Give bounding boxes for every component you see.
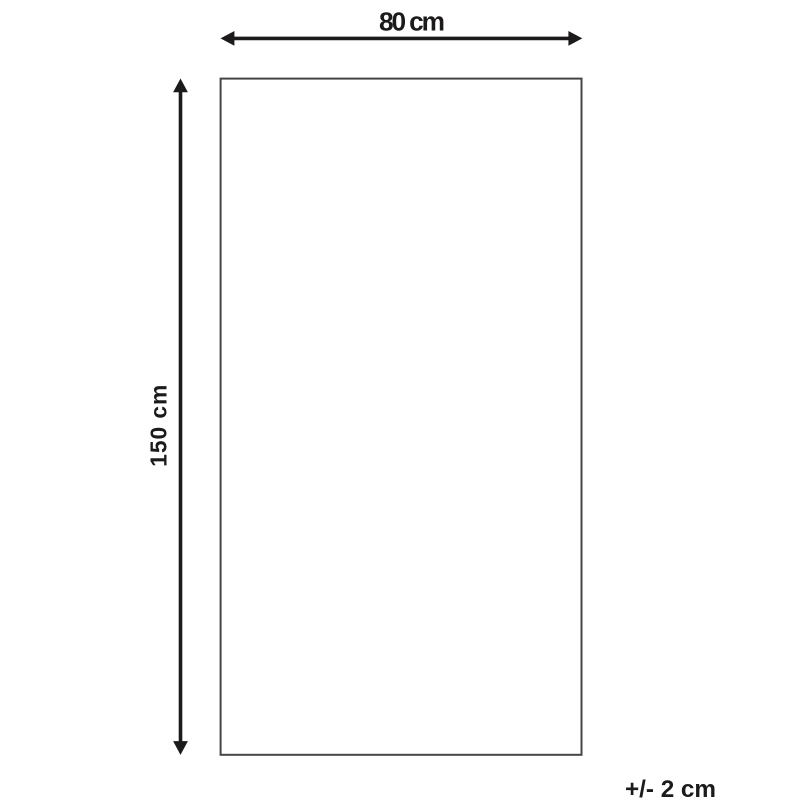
svg-text:+/- 2 cm: +/- 2 cm	[625, 776, 716, 800]
svg-text:150 cm: 150 cm	[145, 385, 171, 467]
svg-text:80 cm: 80 cm	[379, 6, 445, 36]
